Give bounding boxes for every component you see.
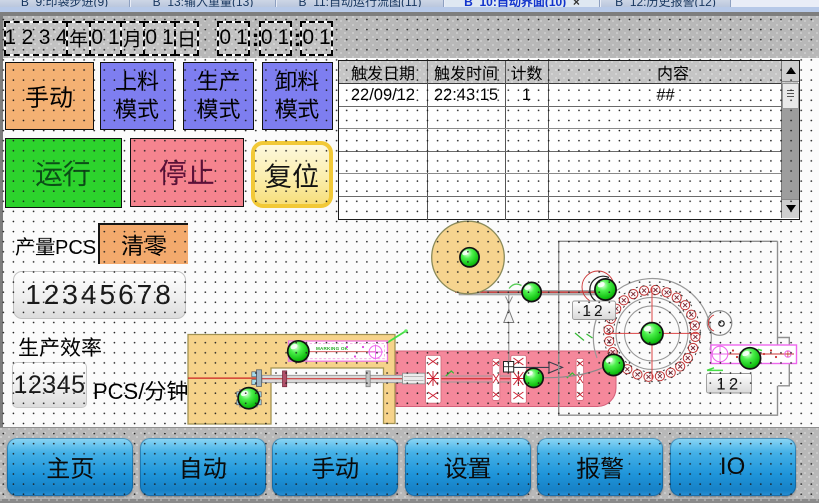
svg-text:12: 12 bbox=[716, 376, 741, 394]
svg-text:12: 12 bbox=[582, 303, 605, 320]
svg-text:MARKING OK: MARKING OK bbox=[316, 346, 349, 351]
